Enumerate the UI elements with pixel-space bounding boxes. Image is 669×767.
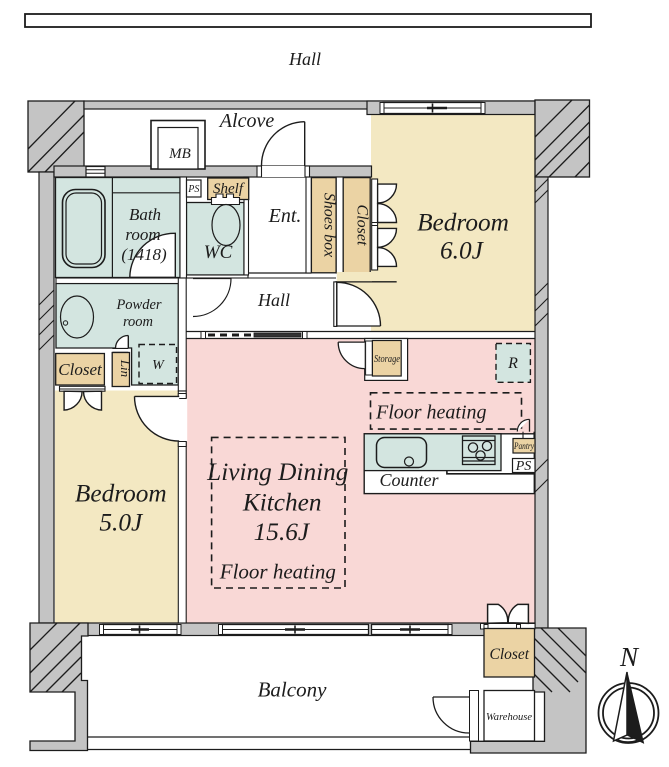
svg-text:Closet: Closet: [489, 646, 529, 663]
svg-text:WC: WC: [204, 242, 233, 263]
svg-text:Bath: Bath: [129, 205, 161, 224]
svg-text:Floor heating: Floor heating: [375, 402, 487, 424]
svg-text:Powder: Powder: [115, 297, 161, 313]
svg-text:5.0J: 5.0J: [99, 509, 144, 537]
svg-text:room: room: [125, 225, 160, 244]
svg-text:Pantry: Pantry: [513, 441, 534, 451]
svg-text:R: R: [507, 355, 518, 372]
svg-text:Living Dining: Living Dining: [206, 458, 348, 486]
svg-text:Hall: Hall: [257, 290, 290, 310]
svg-text:Storage: Storage: [374, 354, 400, 365]
svg-text:15.6J: 15.6J: [254, 518, 311, 546]
svg-text:Bedroom: Bedroom: [417, 209, 509, 237]
svg-text:Ent.: Ent.: [268, 205, 302, 227]
svg-text:Warehouse: Warehouse: [486, 711, 532, 723]
svg-text:Alcove: Alcove: [218, 110, 275, 132]
svg-text:(1418): (1418): [121, 245, 167, 264]
svg-text:Balcony: Balcony: [258, 678, 327, 702]
svg-text:room: room: [123, 314, 153, 330]
svg-text:PS: PS: [515, 459, 532, 474]
svg-text:Hall: Hall: [288, 49, 321, 69]
svg-text:Floor heating: Floor heating: [219, 560, 336, 584]
svg-text:Closet: Closet: [354, 205, 371, 246]
svg-text:Lin: Lin: [118, 359, 133, 377]
svg-text:PS: PS: [187, 184, 199, 195]
svg-text:6.0J: 6.0J: [440, 237, 485, 265]
svg-text:N: N: [619, 642, 640, 672]
svg-text:Closet: Closet: [58, 360, 103, 379]
svg-text:W: W: [152, 358, 165, 373]
svg-text:Bedroom: Bedroom: [75, 480, 167, 508]
svg-text:Kitchen: Kitchen: [242, 489, 322, 517]
svg-text:Counter: Counter: [379, 470, 439, 490]
svg-text:Shoes box: Shoes box: [321, 193, 338, 257]
svg-text:MB: MB: [168, 146, 191, 162]
